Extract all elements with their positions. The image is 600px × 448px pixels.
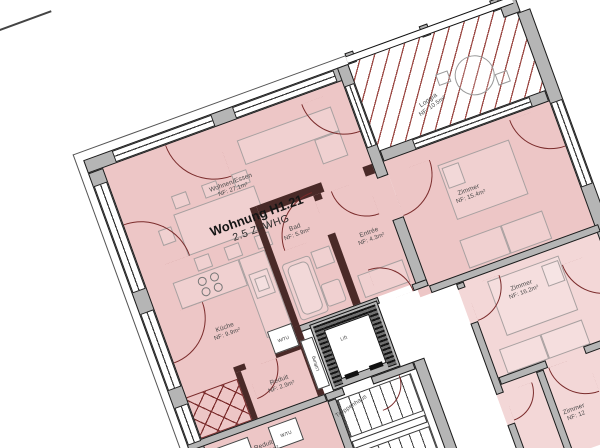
ventilation-label: Lüftung	[310, 355, 320, 371]
washer-dryer-label: W/TU	[279, 429, 292, 438]
washer-dryer-label: W/TU	[277, 334, 290, 343]
floorplan-canvas: W/TU Lüftung W/TU Lüftung	[0, 0, 600, 448]
neighbor-balcony-line	[0, 10, 51, 32]
